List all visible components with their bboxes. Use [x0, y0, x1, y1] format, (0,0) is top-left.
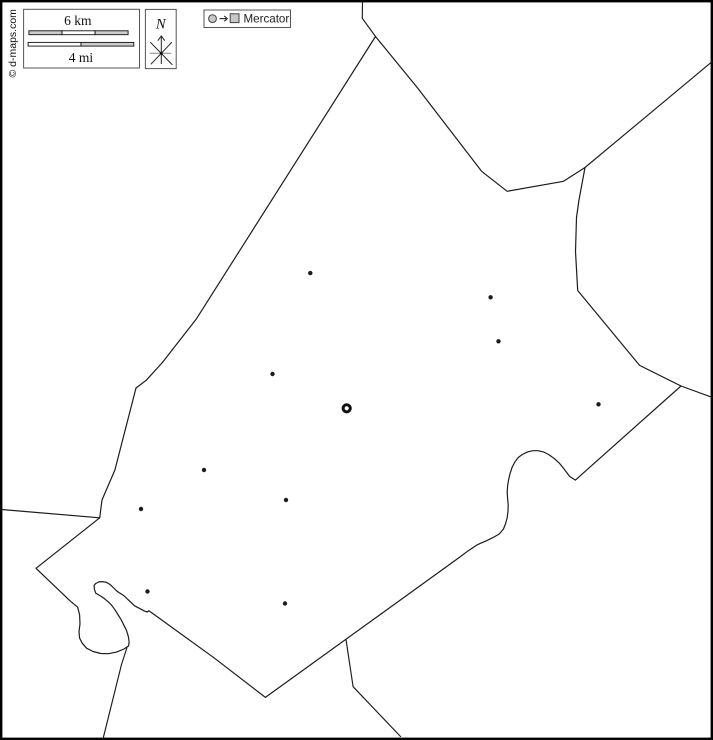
svg-text:6 km: 6 km — [64, 13, 92, 28]
svg-text:N: N — [155, 17, 167, 33]
svg-text:Mercator: Mercator — [244, 13, 290, 26]
svg-text:4 mi: 4 mi — [69, 50, 94, 65]
svg-text:© d-maps.com: © d-maps.com — [7, 9, 19, 78]
